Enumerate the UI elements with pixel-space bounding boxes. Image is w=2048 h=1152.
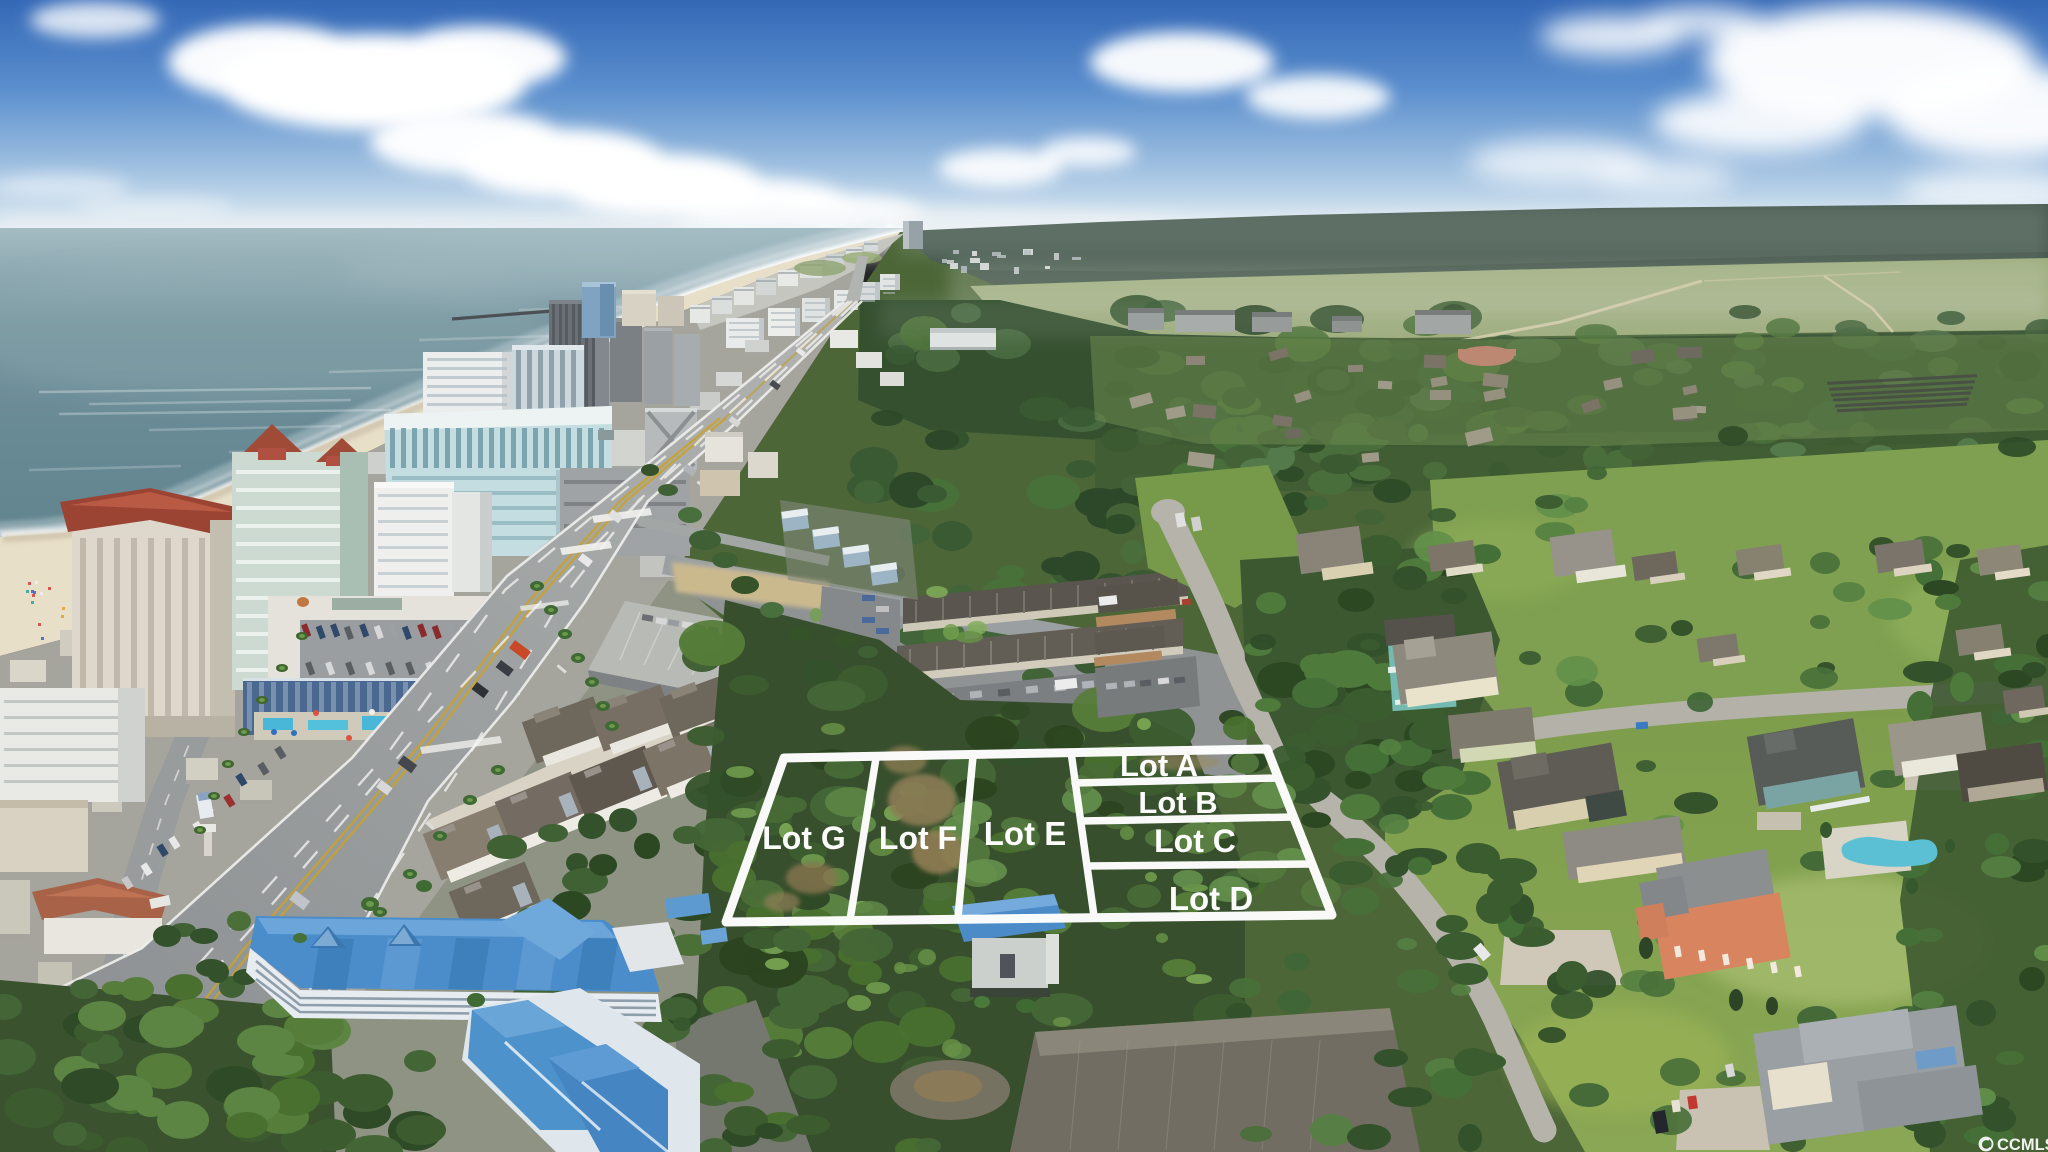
svg-text:CCMLS: CCMLS bbox=[1997, 1136, 2048, 1152]
svg-text:Lot C: Lot C bbox=[1154, 823, 1236, 859]
svg-text:Lot G: Lot G bbox=[762, 820, 846, 856]
svg-text:Lot E: Lot E bbox=[984, 815, 1066, 852]
svg-text:Lot D: Lot D bbox=[1169, 880, 1253, 917]
svg-text:Lot F: Lot F bbox=[879, 820, 957, 856]
svg-text:Lot A: Lot A bbox=[1120, 748, 1198, 783]
svg-text:Lot B: Lot B bbox=[1138, 785, 1217, 820]
